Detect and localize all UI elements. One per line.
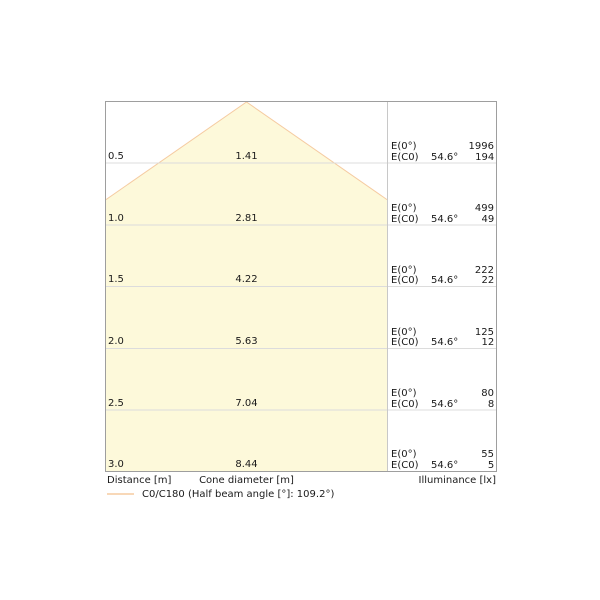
ec0-label: E(C0) [391,276,431,287]
legend-label: C0/C180 (Half beam angle [°]: 109.2°) [142,489,334,500]
e0-label: E(0°) [391,204,431,215]
table-row: 3.0 8.44 E(0°)55 E(C0)54.6°5 [106,447,496,471]
ec0-label: E(C0) [391,338,431,349]
table-row: 2.5 7.04 E(0°)80 E(C0)54.6°8 [106,386,496,410]
e0-illuminance: 80 [458,389,494,400]
e0-illuminance: 55 [458,450,494,461]
beam-angle: 54.6° [431,461,458,472]
legend-line-swatch [107,492,134,496]
illuminance-block: E(0°)55 E(C0)54.6°5 [391,450,494,471]
ec0-illuminance: 5 [458,461,494,472]
cone-diameter-value: 1.41 [106,152,387,163]
ec0-illuminance: 49 [458,215,494,226]
illuminance-block: E(0°)222 E(C0)54.6°22 [391,266,494,287]
e0-label: E(0°) [391,142,431,153]
cone-diameter-value: 2.81 [106,214,387,225]
table-row: 1.5 4.22 E(0°)222 E(C0)54.6°22 [106,263,496,287]
cone-diameter-value: 5.63 [106,337,387,348]
e0-label: E(0°) [391,389,431,400]
legend: C0/C180 (Half beam angle [°]: 109.2°) [107,488,334,500]
ec0-illuminance: 12 [458,338,494,349]
illuminance-block: E(0°)499 E(C0)54.6°49 [391,204,494,225]
illuminance-block: E(0°)125 E(C0)54.6°12 [391,328,494,349]
cone-diameter-value: 8.44 [106,460,387,471]
illuminance-block: E(0°)80 E(C0)54.6°8 [391,389,494,410]
cone-diameter-value: 4.22 [106,275,387,286]
ec0-label: E(C0) [391,215,431,226]
ec0-illuminance: 194 [458,153,494,164]
table-row: 2.0 5.63 E(0°)125 E(C0)54.6°12 [106,325,496,349]
cone-diameter-axis-label: Cone diameter [m] [105,475,388,487]
illuminance-block: E(0°)1996 E(C0)54.6°194 [391,142,494,163]
ec0-label: E(C0) [391,153,431,164]
ec0-illuminance: 22 [458,276,494,287]
cone-diagram-page: 0.5 1.41 E(0°)1996 E(C0)54.6°194 1.0 2.8… [0,0,600,600]
ec0-illuminance: 8 [458,400,494,411]
ec0-label: E(C0) [391,461,431,472]
e0-illuminance: 1996 [458,142,494,153]
cone-diameter-value: 7.04 [106,399,387,410]
beam-angle: 54.6° [431,153,458,164]
axis-labels-row: Distance [m] Cone diameter [m] Illuminan… [105,475,497,487]
beam-angle: 54.6° [431,338,458,349]
table-row: 1.0 2.81 E(0°)499 E(C0)54.6°49 [106,201,496,225]
beam-angle: 54.6° [431,400,458,411]
beam-angle: 54.6° [431,276,458,287]
e0-label: E(0°) [391,450,431,461]
e0-illuminance: 499 [458,204,494,215]
beam-angle: 54.6° [431,215,458,226]
ec0-label: E(C0) [391,400,431,411]
cone-diagram-chart: 0.5 1.41 E(0°)1996 E(C0)54.6°194 1.0 2.8… [105,101,497,472]
illuminance-axis-label: Illuminance [lx] [419,475,497,487]
table-row: 0.5 1.41 E(0°)1996 E(C0)54.6°194 [106,139,496,163]
